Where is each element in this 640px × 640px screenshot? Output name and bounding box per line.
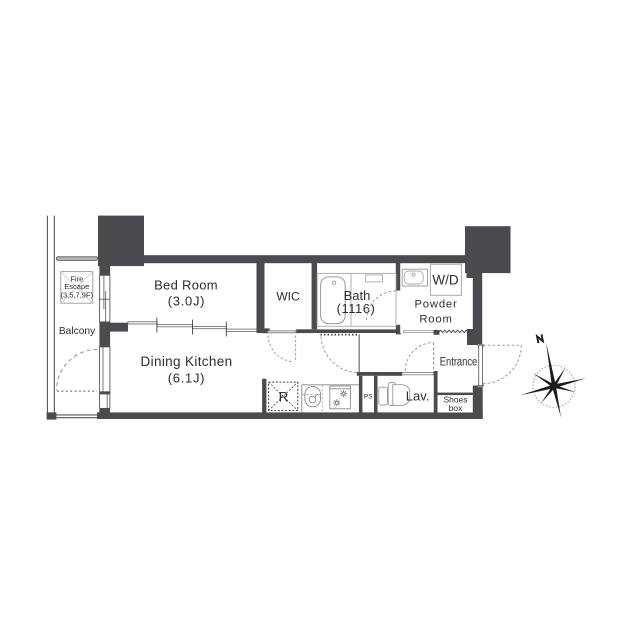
svg-text:Lav.: Lav. (406, 388, 430, 403)
svg-text:Balcony: Balcony (59, 326, 96, 337)
svg-text:Room: Room (419, 314, 452, 326)
svg-text:WIC: WIC (276, 290, 300, 304)
svg-text:Entrance: Entrance (440, 355, 478, 369)
svg-text:(3,5,7,9F): (3,5,7,9F) (61, 290, 94, 299)
svg-text:(3.0J): (3.0J) (168, 293, 205, 308)
svg-text:Bed Room: Bed Room (154, 278, 218, 293)
svg-text:R: R (279, 389, 289, 404)
svg-text:(6.1J): (6.1J) (168, 371, 205, 386)
svg-text:(1116): (1116) (337, 301, 376, 316)
svg-text:W/D: W/D (432, 273, 458, 288)
svg-text:box: box (449, 403, 463, 413)
svg-text:Powder: Powder (414, 299, 457, 311)
svg-text:PS: PS (364, 393, 373, 400)
svg-text:Dining Kitchen: Dining Kitchen (141, 354, 233, 369)
